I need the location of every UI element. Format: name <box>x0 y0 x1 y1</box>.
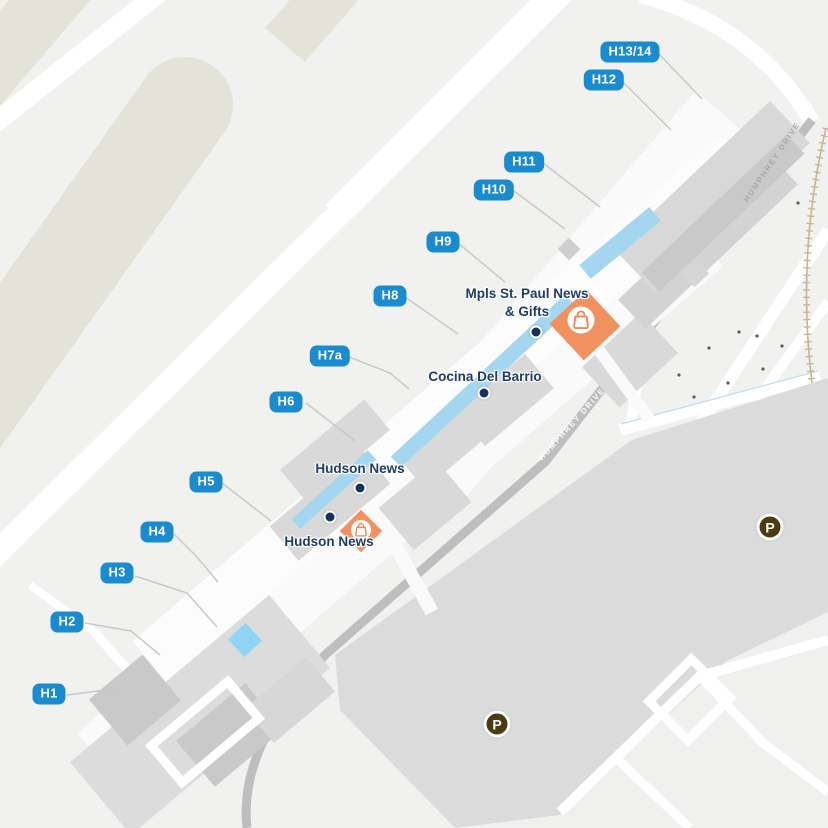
poi-dot-hudson-lower[interactable] <box>324 511 337 524</box>
gate-label-h12[interactable]: H12 <box>584 70 624 91</box>
gate-label-h9[interactable]: H9 <box>426 232 459 253</box>
gate-label-h8[interactable]: H8 <box>373 286 406 307</box>
parking-icon[interactable]: P <box>484 711 511 738</box>
poi-label-line2: & Gifts <box>465 303 588 321</box>
gate-label-h11[interactable]: H11 <box>504 152 544 173</box>
poi-label-hudson-news-upper[interactable]: Hudson News <box>315 460 404 478</box>
gate-label-h13-14[interactable]: H13/14 <box>600 42 659 63</box>
poi-label-line1: Mpls St. Paul News <box>465 285 588 303</box>
poi-label-mpls-news-gifts[interactable]: Mpls St. Paul News & Gifts <box>465 285 588 321</box>
gate-label-h5[interactable]: H5 <box>189 472 222 493</box>
poi-dot-mpls[interactable] <box>530 326 543 339</box>
poi-label-cocina-del-barrio[interactable]: Cocina Del Barrio <box>428 368 541 386</box>
poi-dot-hudson-upper[interactable] <box>354 482 367 495</box>
gate-label-h4[interactable]: H4 <box>140 522 173 543</box>
parking-icon[interactable]: P <box>757 514 784 541</box>
gate-label-h10[interactable]: H10 <box>474 180 514 201</box>
gate-label-h2[interactable]: H2 <box>50 612 83 633</box>
poi-dot-cocina[interactable] <box>478 387 491 400</box>
map-base-layer <box>0 0 828 828</box>
gate-label-h7a[interactable]: H7a <box>310 346 350 367</box>
poi-label-hudson-news-lower[interactable]: Hudson News <box>284 533 373 551</box>
gate-label-h3[interactable]: H3 <box>100 563 133 584</box>
gate-label-h1[interactable]: H1 <box>32 684 65 705</box>
gate-label-h6[interactable]: H6 <box>269 392 302 413</box>
airport-terminal-map[interactable]: H13/14 H12 H11 H10 H9 H8 H7a H6 H5 H4 H3… <box>0 0 828 828</box>
